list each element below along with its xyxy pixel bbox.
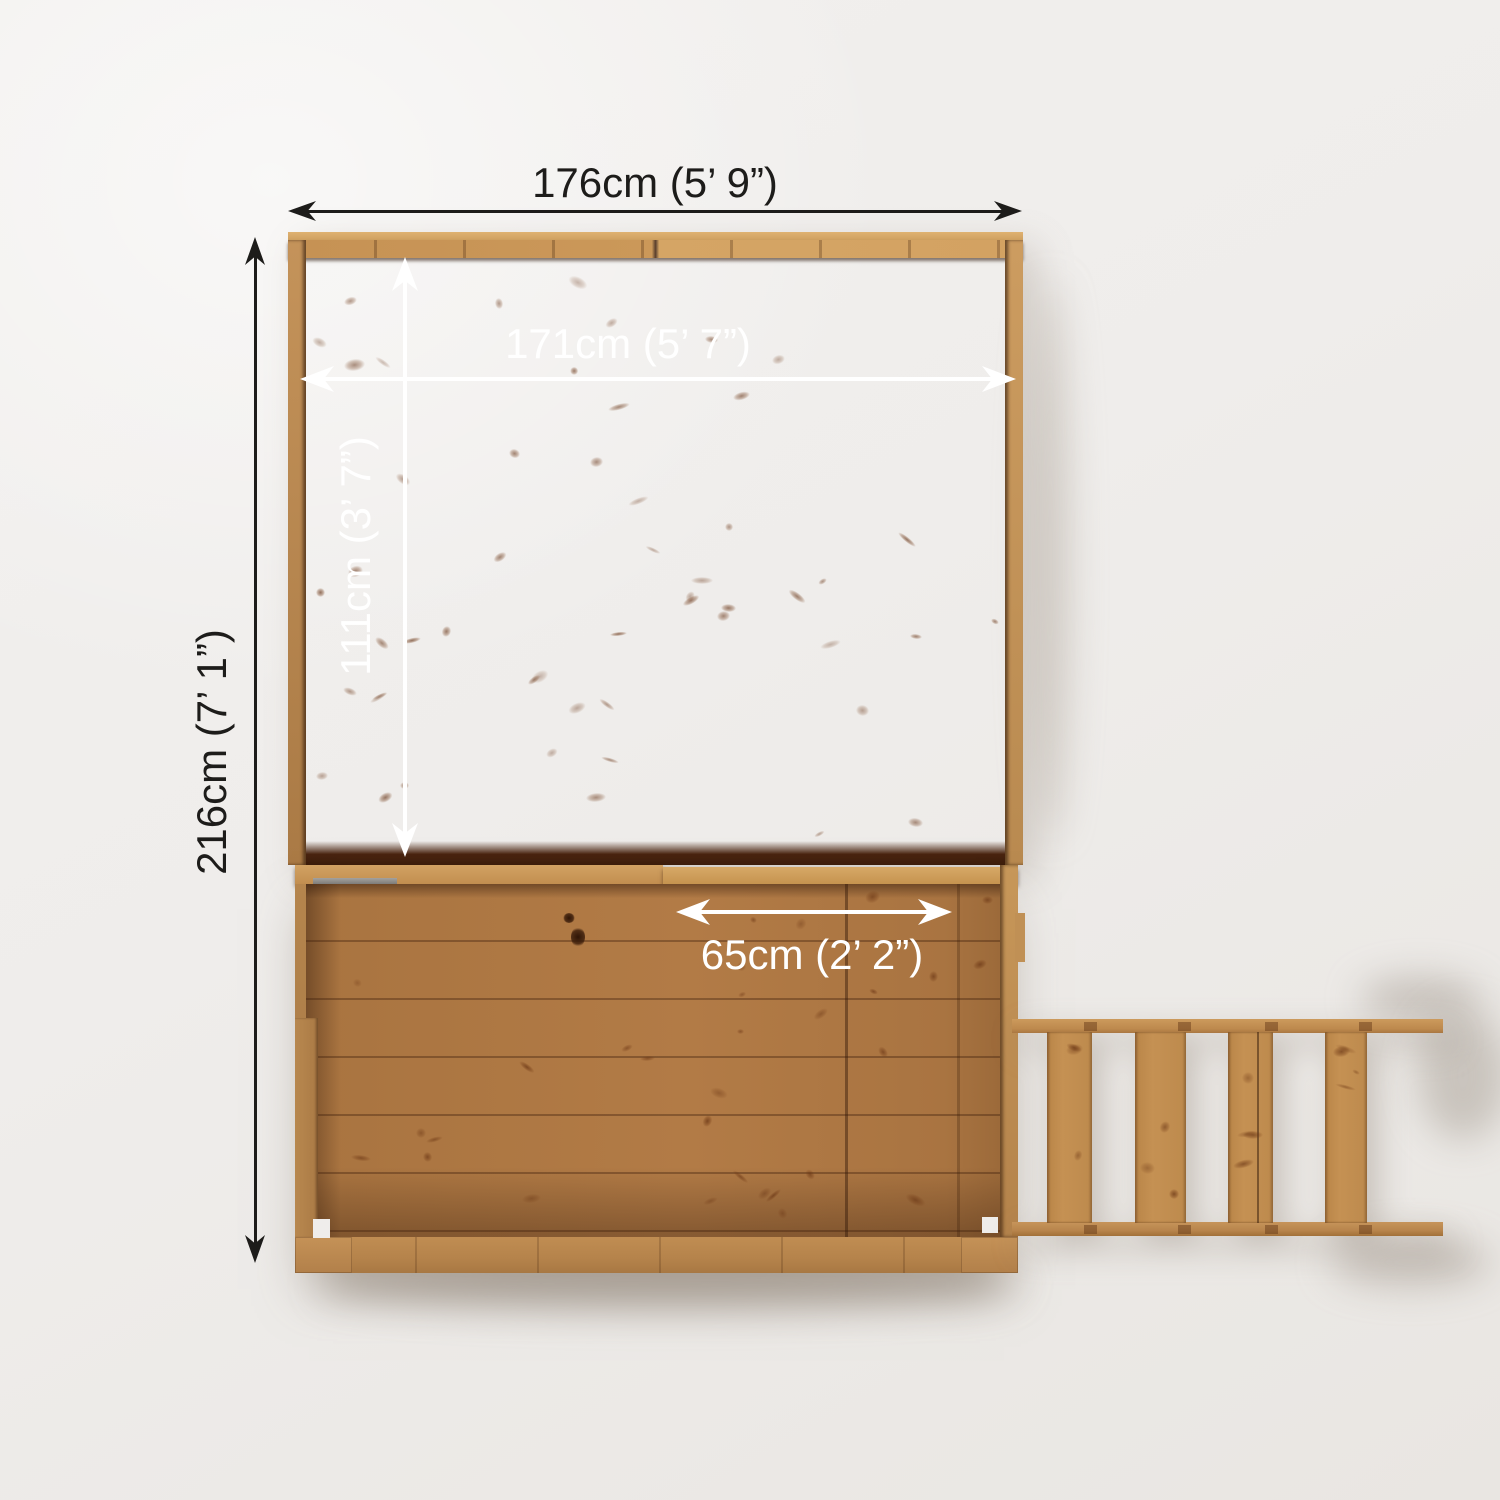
wood-knot <box>416 1128 426 1138</box>
dimension-label: 65cm (2’ 2”) <box>701 931 924 979</box>
roof-bottom-edge <box>306 841 1005 865</box>
dimension-label: 176cm (5’ 9”) <box>532 159 778 207</box>
wood-knot <box>343 295 358 307</box>
wood-knot <box>440 625 452 638</box>
roof-edge-lip <box>288 232 1023 240</box>
wood-knot <box>819 638 841 651</box>
deck-gap-notch <box>313 1219 330 1238</box>
ladder-joint-mark <box>1178 1022 1191 1031</box>
ladder-joint-mark <box>1084 1225 1097 1234</box>
wood-knot <box>422 1151 433 1163</box>
deck-corner-post <box>295 1237 352 1273</box>
roof-top-beam <box>288 240 1023 258</box>
wood-knot <box>627 495 649 509</box>
wood-knot <box>1335 1082 1356 1092</box>
roof-left-beam <box>288 240 306 865</box>
deck-plank-seam <box>957 884 960 1238</box>
wood-knot <box>868 987 878 995</box>
wood-knot <box>342 685 357 696</box>
wood-knot <box>545 747 559 760</box>
ladder-rung <box>1047 1032 1092 1223</box>
wood-knot <box>876 1044 890 1058</box>
balcony-deck-top-view <box>295 865 1018 1273</box>
wood-knot <box>804 1168 817 1181</box>
wood-knot <box>1168 1187 1181 1200</box>
soft-shadow <box>1030 280 1070 840</box>
wood-knot <box>749 915 758 924</box>
wood-knot <box>590 456 605 468</box>
wood-knot <box>372 691 389 701</box>
ladder-joint-mark <box>1359 1225 1372 1234</box>
wood-knot <box>738 991 747 998</box>
wood-knot <box>645 545 662 556</box>
wood-knot <box>374 355 392 369</box>
deck-knot-hole <box>571 927 585 947</box>
wood-knot <box>737 1029 744 1034</box>
ladder-rung <box>1135 1032 1186 1223</box>
wood-knot <box>620 1043 634 1054</box>
wood-knot <box>928 970 937 981</box>
deck-top-rail-right <box>663 867 1018 884</box>
dimension-line <box>403 262 407 852</box>
dimension-line <box>682 910 946 914</box>
wood-knot <box>818 577 828 586</box>
deck-left-post-lower <box>295 1018 318 1238</box>
wood-knot <box>814 829 826 838</box>
wood-knot <box>982 896 993 905</box>
roof-right-beam <box>1005 240 1023 865</box>
wood-knot <box>343 357 365 372</box>
deck-knot-hole <box>563 913 575 923</box>
wood-knot <box>495 298 505 310</box>
wood-knot <box>314 586 326 598</box>
ladder-joint-mark <box>1265 1022 1278 1031</box>
wood-knot <box>352 977 364 988</box>
dimension-label: 111cm (3’ 7”) <box>332 436 380 676</box>
dimension-label: 171cm (5’ 7”) <box>505 320 751 368</box>
ladder-joint-mark <box>1359 1022 1372 1031</box>
wood-knot <box>813 1006 831 1022</box>
dimension-diagram: 176cm (5’ 9”) 216cm (7’ 1”) 171cm (5’ 7”… <box>0 0 1500 1500</box>
ladder-top-view <box>1012 1019 1443 1237</box>
wood-knot <box>567 273 589 291</box>
wood-knot <box>904 1191 927 1209</box>
wood-knot <box>793 916 808 931</box>
wood-knot <box>907 817 923 828</box>
wood-knot <box>701 1114 714 1128</box>
wood-knot <box>771 353 787 366</box>
wood-knot <box>724 521 735 532</box>
ladder-top-rail <box>1012 1019 1443 1033</box>
wood-knot <box>732 1168 750 1184</box>
wood-knot <box>1139 1162 1155 1176</box>
soft-shadow <box>1330 1238 1490 1286</box>
wood-knot <box>991 617 1000 625</box>
wood-knot <box>492 549 509 564</box>
wood-knot <box>1352 1068 1361 1076</box>
dimension-line <box>306 377 1010 381</box>
ladder-rung <box>1325 1032 1367 1223</box>
wood-knot <box>776 1207 788 1220</box>
wood-knot <box>598 698 615 712</box>
wood-knot <box>702 1195 718 1206</box>
ladder-rung <box>1228 1032 1273 1223</box>
wood-knot <box>1241 1071 1256 1086</box>
wood-knot <box>732 390 750 402</box>
wood-knot <box>910 633 923 639</box>
wood-knot <box>1073 1149 1084 1162</box>
wood-knot <box>787 587 808 605</box>
wood-knot <box>351 1154 371 1162</box>
ladder-joint-mark <box>1084 1022 1097 1031</box>
wood-knot <box>896 531 916 549</box>
ladder-joint-mark <box>1178 1225 1191 1234</box>
ladder-joint-mark <box>1265 1225 1278 1234</box>
dimension-line <box>294 210 1016 213</box>
wood-knot <box>311 335 329 350</box>
wood-knot <box>863 889 881 905</box>
wood-knot <box>425 1135 443 1145</box>
wood-knot <box>1158 1120 1172 1135</box>
rung-plank-seam <box>1257 1032 1259 1223</box>
wood-knot <box>601 755 620 764</box>
wood-knot <box>567 700 588 716</box>
wood-knot <box>640 1056 655 1062</box>
deck-right-edge-tab <box>1015 913 1025 962</box>
wood-knot <box>1232 1158 1254 1170</box>
ladder-bottom-rail <box>1012 1222 1443 1236</box>
wood-knot <box>691 577 713 584</box>
wood-knot <box>585 792 605 803</box>
deck-bottom-rail <box>295 1237 1018 1273</box>
wood-knot <box>518 1059 536 1074</box>
dimension-label: 216cm (7’ 1”) <box>188 629 236 875</box>
wood-knot <box>709 1085 729 1100</box>
wood-knot <box>971 957 987 971</box>
deck-corner-post <box>961 1237 1018 1273</box>
deck-gap-notch <box>982 1217 998 1233</box>
dimension-line <box>254 243 257 1257</box>
wood-knot <box>855 704 870 717</box>
wood-knot <box>522 1192 542 1204</box>
wood-knot <box>610 631 627 637</box>
wood-knot <box>376 790 394 805</box>
wood-knot <box>507 447 520 459</box>
wood-knot <box>608 402 631 414</box>
wood-knot <box>315 771 328 780</box>
